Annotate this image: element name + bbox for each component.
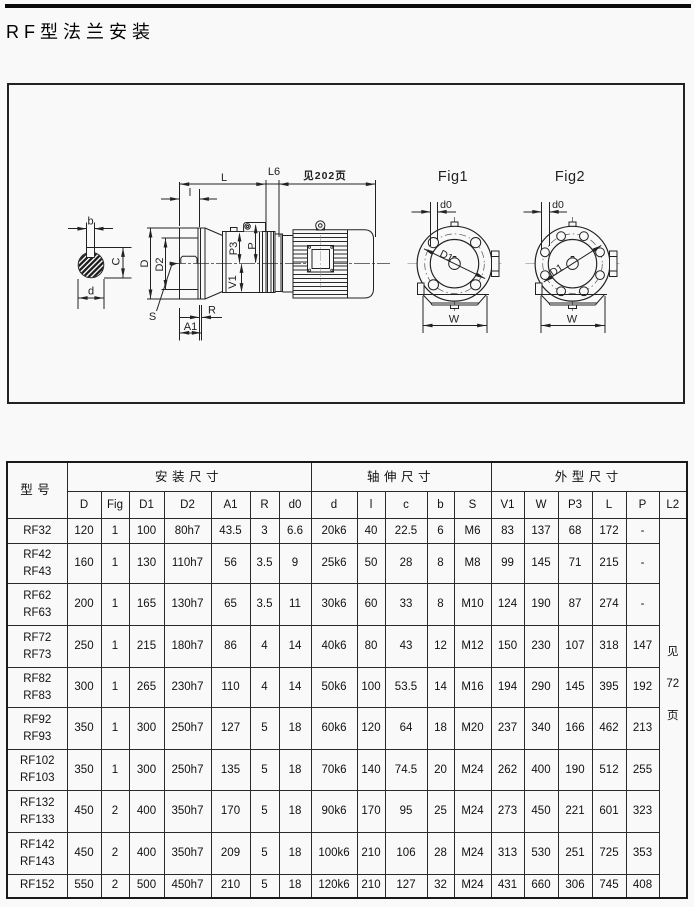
svg-text:V1: V1 bbox=[227, 275, 239, 288]
svg-text:b: b bbox=[87, 216, 93, 228]
svg-text:L: L bbox=[221, 172, 227, 184]
svg-text:R: R bbox=[208, 305, 216, 317]
svg-text:C: C bbox=[111, 257, 123, 265]
svg-text:P3: P3 bbox=[228, 242, 240, 255]
svg-text:A1: A1 bbox=[184, 321, 197, 333]
svg-text:Fig1: Fig1 bbox=[438, 169, 468, 185]
svg-text:d0: d0 bbox=[552, 199, 564, 211]
svg-text:Fig2: Fig2 bbox=[555, 169, 585, 185]
svg-text:d0: d0 bbox=[440, 199, 452, 211]
svg-text:D: D bbox=[139, 259, 151, 267]
svg-text:L6: L6 bbox=[268, 166, 280, 178]
svg-text:D2: D2 bbox=[154, 257, 166, 271]
svg-text:见202页: 见202页 bbox=[303, 169, 347, 182]
svg-text:l: l bbox=[189, 187, 191, 199]
svg-text:W: W bbox=[449, 314, 460, 326]
svg-text:d: d bbox=[88, 286, 94, 298]
svg-text:W: W bbox=[567, 314, 578, 326]
svg-text:S: S bbox=[149, 311, 156, 323]
svg-text:P: P bbox=[247, 242, 259, 249]
